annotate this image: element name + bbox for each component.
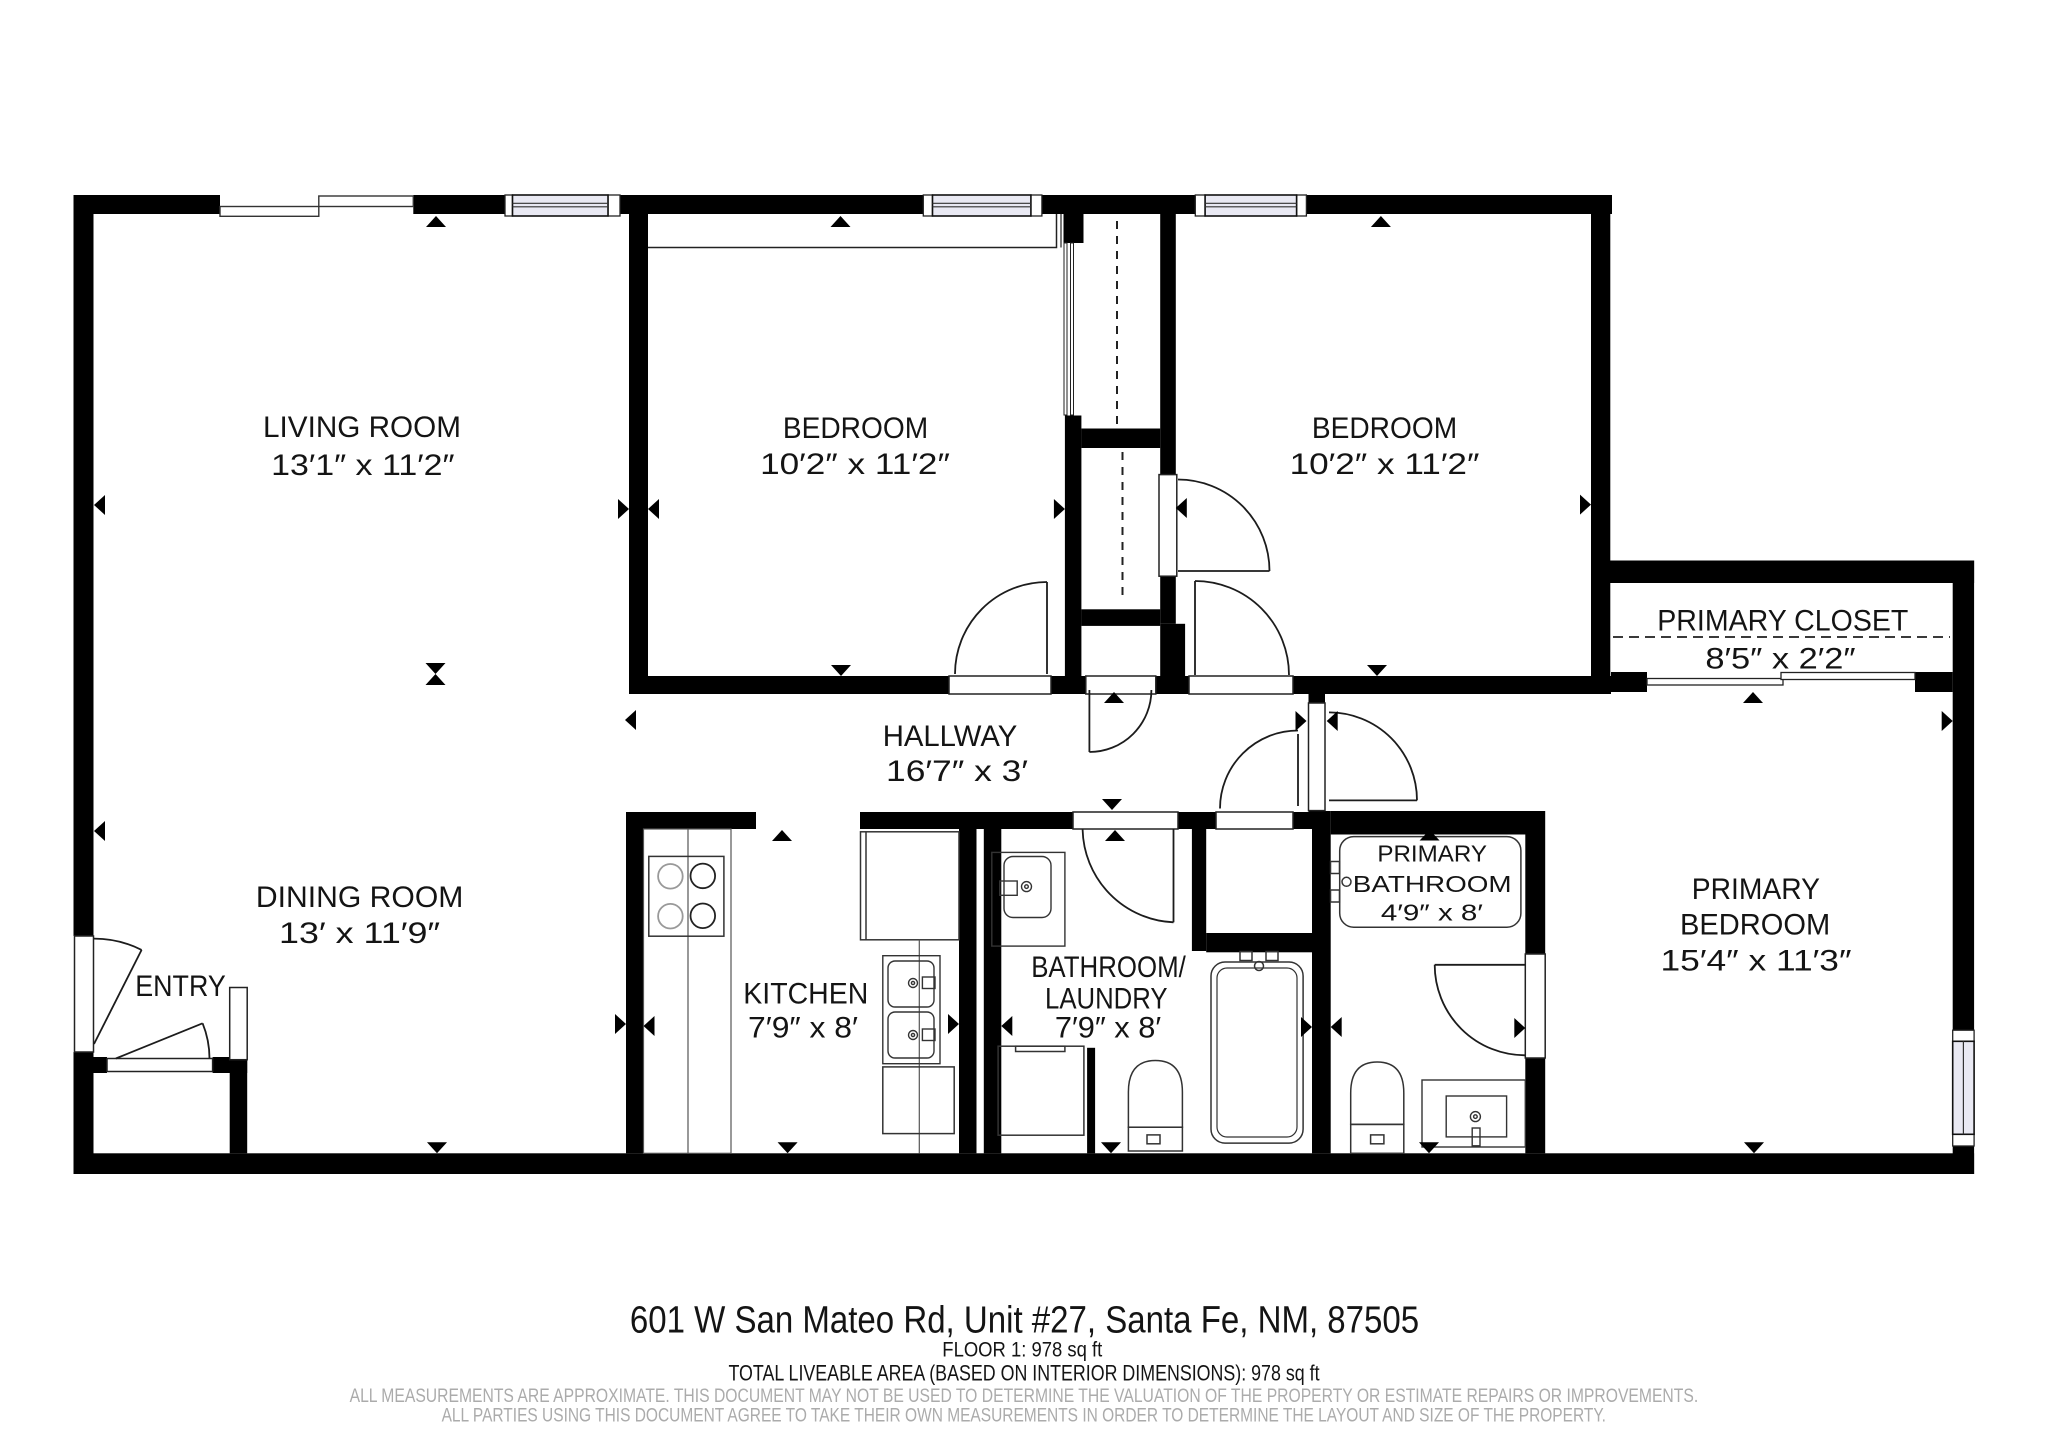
svg-text:13′1″ x 11′2″: 13′1″ x 11′2″ [271,449,455,482]
svg-text:8′5″ x 2′2″: 8′5″ x 2′2″ [1705,643,1856,676]
svg-text:PRIMARY: PRIMARY [1692,873,1820,906]
svg-text:LIVING ROOM: LIVING ROOM [263,411,461,444]
svg-text:PRIMARY: PRIMARY [1377,841,1487,867]
svg-text:10′2″ x 11′2″: 10′2″ x 11′2″ [1290,448,1480,481]
svg-text:PRIMARY CLOSET: PRIMARY CLOSET [1657,605,1908,638]
svg-text:KITCHEN: KITCHEN [743,978,868,1011]
svg-text:4′9″ x 8′: 4′9″ x 8′ [1381,899,1483,925]
svg-text:DINING ROOM: DINING ROOM [256,881,464,914]
svg-text:BEDROOM: BEDROOM [1680,909,1830,942]
svg-text:TOTAL LIVEABLE AREA (BASED ON: TOTAL LIVEABLE AREA (BASED ON INTERIOR D… [728,1361,1319,1386]
svg-text:16′7″ x 3′: 16′7″ x 3′ [886,755,1028,788]
svg-text:601 W San Mateo Rd, Unit #27,: 601 W San Mateo Rd, Unit #27, Santa Fe, … [630,1300,1419,1342]
svg-text:ENTRY: ENTRY [135,970,226,1003]
svg-text:7′9″ x 8′: 7′9″ x 8′ [748,1012,858,1045]
svg-text:BATHROOM: BATHROOM [1353,871,1512,897]
svg-text:10′2″ x 11′2″: 10′2″ x 11′2″ [760,448,950,481]
svg-text:HALLWAY: HALLWAY [883,720,1018,753]
svg-text:13′ x 11′9″: 13′ x 11′9″ [279,917,441,950]
svg-text:ALL PARTIES USING THIS DOCUMEN: ALL PARTIES USING THIS DOCUMENT AGREE TO… [442,1406,1606,1427]
svg-text:15′4″ x 11′3″: 15′4″ x 11′3″ [1661,944,1852,977]
svg-text:BEDROOM: BEDROOM [783,412,928,445]
svg-text:ALL MEASUREMENTS ARE APPROXIMA: ALL MEASUREMENTS ARE APPROXIMATE. THIS D… [350,1386,1699,1407]
svg-text:FLOOR 1: 978 sq ft: FLOOR 1: 978 sq ft [942,1339,1102,1362]
svg-text:7′9″ x 8′: 7′9″ x 8′ [1055,1011,1162,1044]
svg-text:BEDROOM: BEDROOM [1312,412,1457,445]
svg-text:BATHROOM/: BATHROOM/ [1031,951,1186,984]
